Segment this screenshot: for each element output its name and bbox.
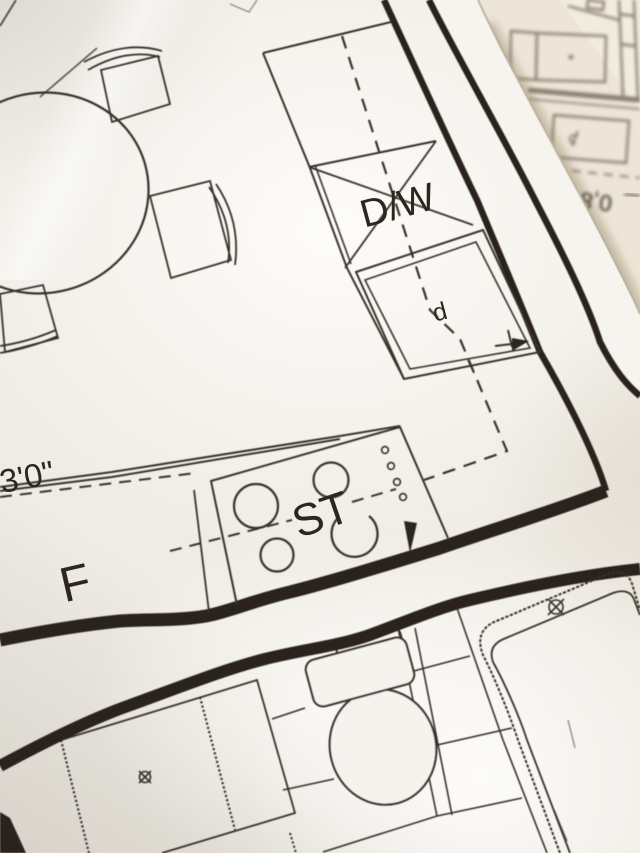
svg-text:3'0": 3'0" <box>0 453 57 500</box>
svg-text:d: d <box>430 297 451 328</box>
svg-text:D/W: D/W <box>356 175 441 236</box>
svg-text:F: F <box>55 554 96 613</box>
